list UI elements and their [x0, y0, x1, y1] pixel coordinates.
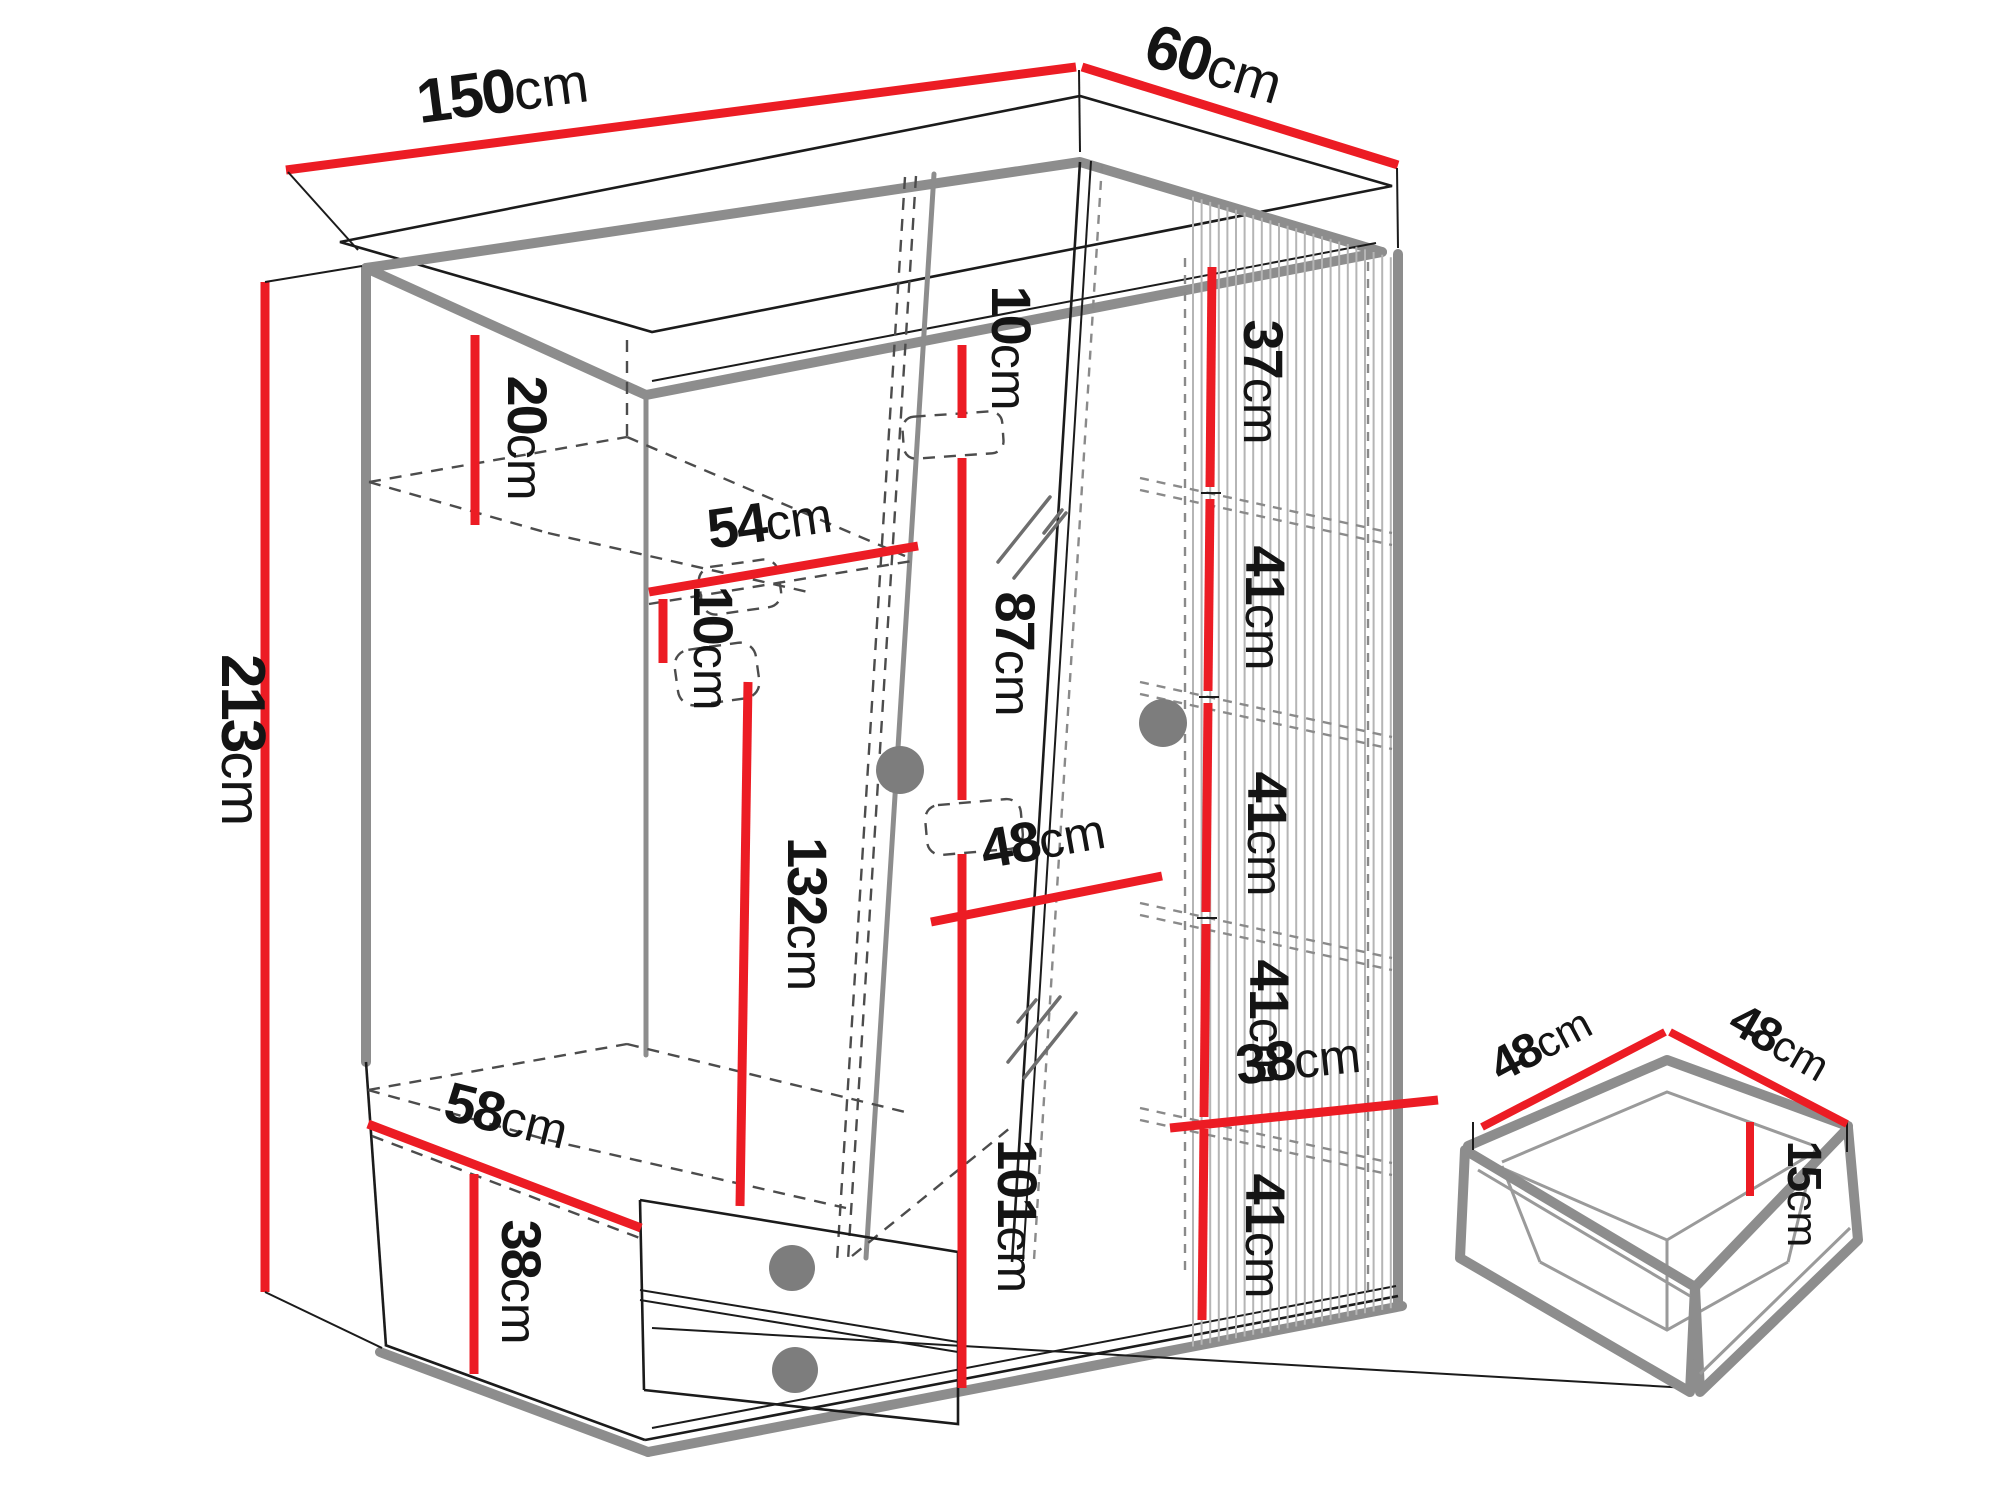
center-door-knob: [876, 746, 924, 794]
diagram-canvas: 150cm 60cm 213cm 20cm 54cm 10cm 132cm 58…: [0, 0, 2000, 1500]
wardrobe-dimension-diagram: 150cm 60cm 213cm 20cm 54cm 10cm 132cm 58…: [0, 0, 2000, 1500]
ext-60-right: [1397, 168, 1398, 248]
dim-line-41b: [1206, 703, 1208, 912]
drawer-knob-1: [769, 1245, 815, 1291]
label-132cm: 132cm: [776, 837, 839, 991]
label-38cm-left: 38cm: [490, 1220, 553, 1345]
label-41cm-4: 41cm: [1234, 1174, 1297, 1299]
label-48cm-detail-right: 48cm: [1720, 993, 1839, 1092]
ext-213-bottom: [265, 1292, 382, 1348]
label-20cm: 20cm: [496, 376, 559, 501]
ext-213-top: [265, 266, 362, 282]
label-41cm-1: 41cm: [1234, 546, 1297, 671]
label-213cm: 213cm: [208, 654, 277, 826]
ext-150-left: [288, 172, 358, 250]
right-door-knob: [1139, 699, 1187, 747]
label-10cm-center: 10cm: [980, 286, 1043, 411]
label-10cm-left: 10cm: [682, 586, 745, 711]
dim-line-41d: [1202, 1129, 1204, 1320]
dim-line-41c: [1204, 924, 1206, 1117]
label-101cm: 101cm: [986, 1139, 1049, 1293]
drawer-knob-2: [772, 1347, 818, 1393]
label-150cm: 150cm: [413, 46, 593, 137]
label-15cm: 15cm: [1777, 1141, 1830, 1248]
dim-line-37: [1210, 267, 1212, 487]
label-41cm-2: 41cm: [1236, 772, 1299, 897]
ext-150-60-apex: [1079, 70, 1080, 152]
dim-line-41a: [1208, 499, 1210, 691]
label-87cm: 87cm: [984, 592, 1047, 717]
label-60cm: 60cm: [1137, 11, 1291, 118]
label-37cm: 37cm: [1232, 320, 1295, 445]
